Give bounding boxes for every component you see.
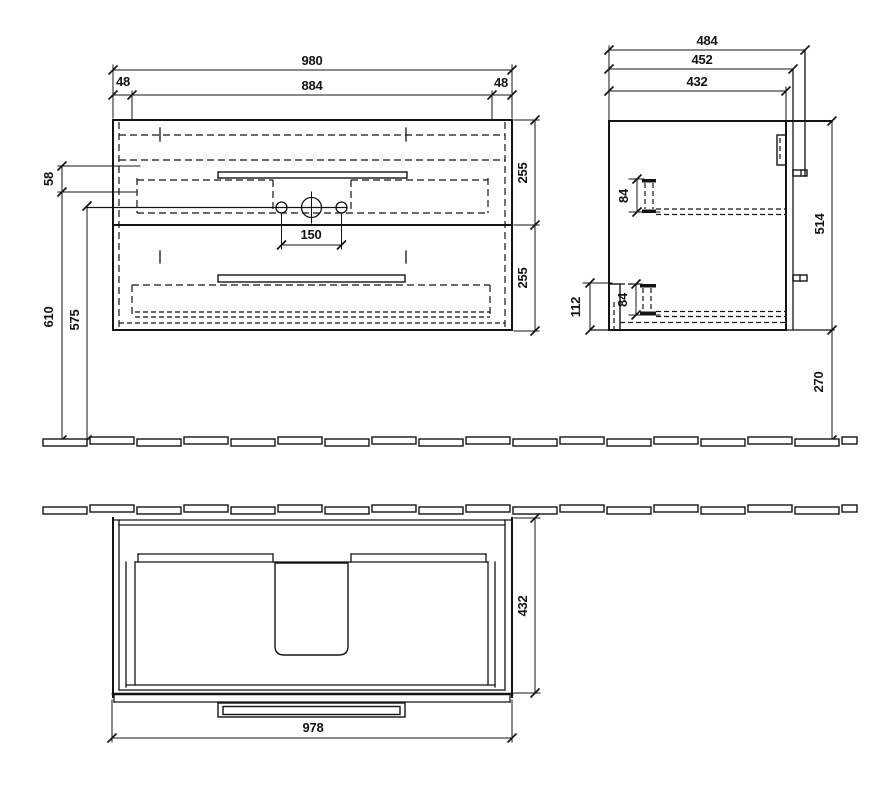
plan-view: 432 978 <box>108 514 541 743</box>
dim-depth-rail: 452 <box>691 52 712 67</box>
front-view: 980 884 48 48 58 610 575 255 255 <box>41 53 540 445</box>
vanity-technical-drawing: 980 884 48 48 58 610 575 255 255 <box>0 0 877 798</box>
dim-tap-spacing: 150 <box>300 227 321 242</box>
dim-drawer-width: 884 <box>301 78 323 93</box>
wall-hatching <box>43 505 857 514</box>
dim-plan-depth: 432 <box>515 595 530 616</box>
side-height-dimensions: 514 270 <box>811 117 837 445</box>
dim-panel-right: 48 <box>494 75 508 90</box>
sink-bowl <box>275 563 348 655</box>
dim-upper-bracket: 84 <box>616 188 631 203</box>
dim-plan-width: 978 <box>302 720 323 735</box>
front-top-dimensions: 980 884 48 48 <box>109 53 517 120</box>
side-view: 484 452 432 84 84 112 514 <box>568 33 837 445</box>
dim-panel-left: 48 <box>116 74 130 89</box>
technical-drawing-page: 980 884 48 48 58 610 575 255 255 <box>0 0 877 798</box>
dim-body-height: 514 <box>812 212 827 234</box>
dim-upper-drawer: 255 <box>515 162 530 183</box>
handle-recess <box>218 703 405 717</box>
side-top-dimensions: 484 452 432 <box>605 33 810 120</box>
dim-lower-bracket: 84 <box>615 292 630 307</box>
dim-floor-clearance: 270 <box>811 371 826 392</box>
dim-rim-offset: 58 <box>41 172 56 186</box>
dim-height-top: 610 <box>41 306 56 327</box>
dim-height-rim: 575 <box>67 309 82 330</box>
dim-front-drop: 112 <box>568 297 583 317</box>
plan-depth-dimension: 432 <box>514 514 540 698</box>
basin-rim <box>126 554 495 687</box>
dim-total-width: 980 <box>301 53 322 68</box>
tap-holes <box>87 192 347 223</box>
floor-hatching <box>43 437 857 446</box>
dim-lower-drawer: 255 <box>515 267 530 288</box>
dim-body-depth: 432 <box>686 74 707 89</box>
front-right-dimensions: 255 255 <box>514 116 540 336</box>
front-left-dimensions: 58 610 575 <box>41 162 140 445</box>
dim-total-depth: 484 <box>696 33 718 48</box>
side-bracket-dimensions: 84 84 <box>615 175 660 320</box>
side-front-drop-dimension: 112 <box>568 279 612 335</box>
